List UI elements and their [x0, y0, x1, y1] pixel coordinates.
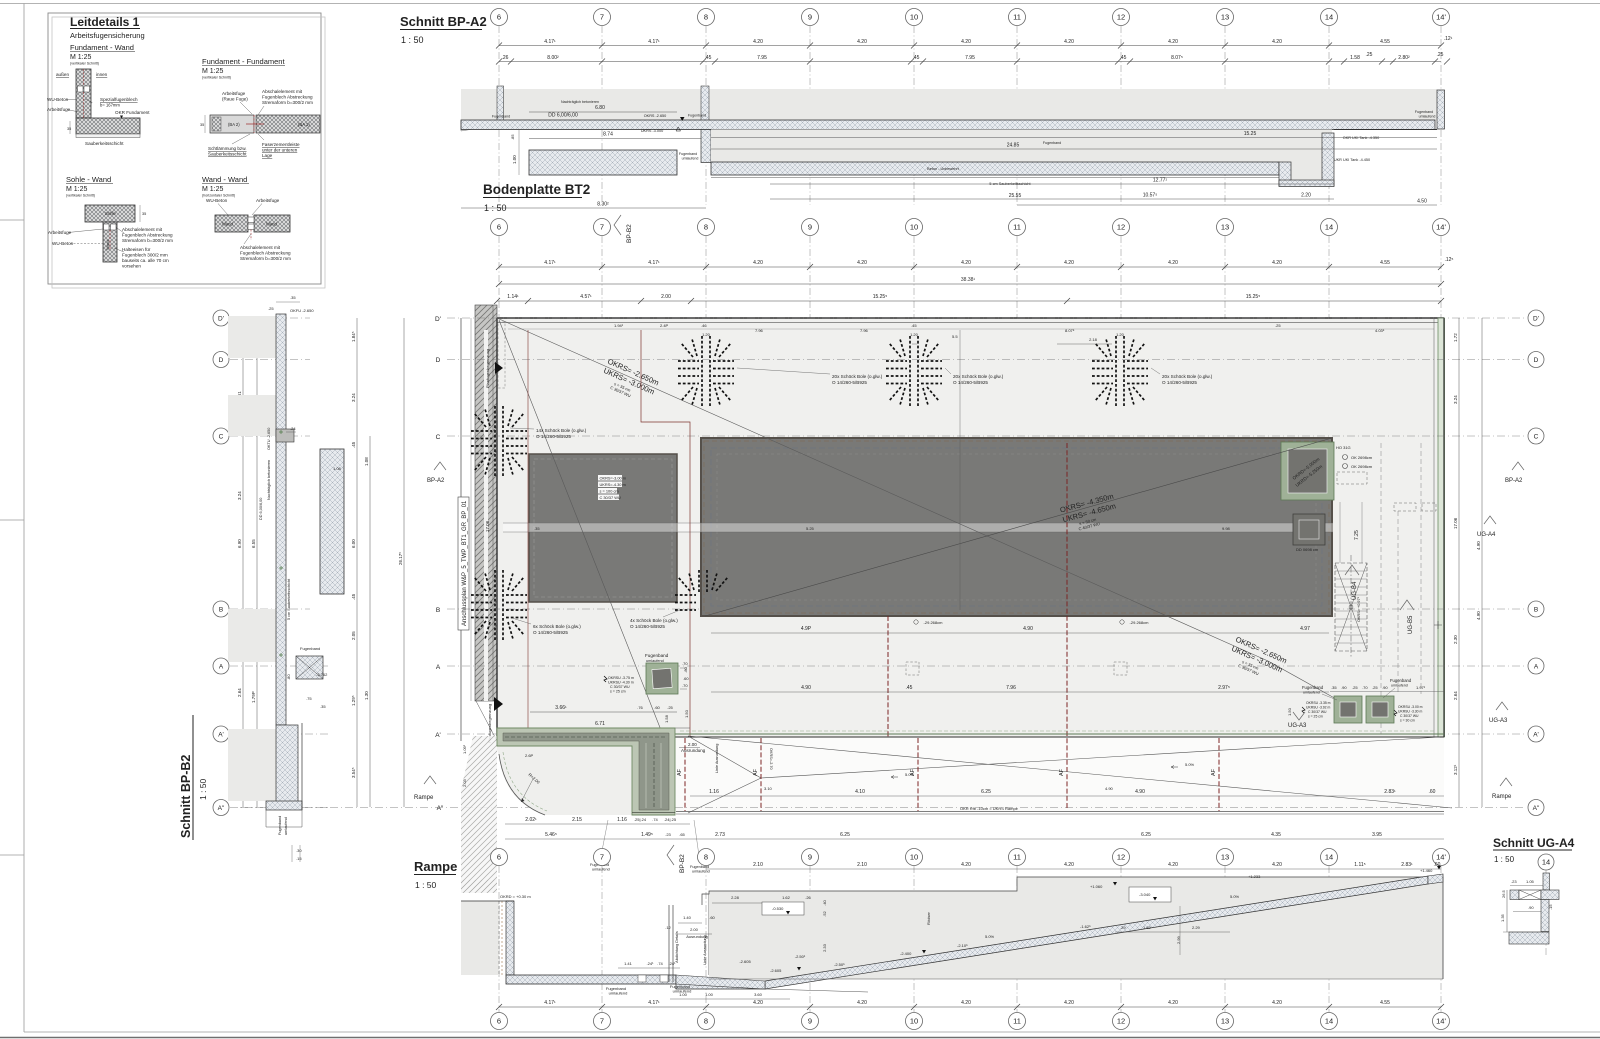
- svg-text:2.02¹: 2.02¹: [525, 817, 537, 823]
- svg-text:Rampe: Rampe: [414, 859, 457, 874]
- svg-text:1.62: 1.62: [782, 895, 791, 900]
- svg-text:Arbeitsfuge: Arbeitsfuge: [256, 198, 280, 203]
- svg-text:.25: .25: [1437, 52, 1444, 58]
- svg-text:umlaufend: umlaufend: [1303, 691, 1320, 695]
- svg-text:4.20: 4.20: [1272, 39, 1282, 45]
- svg-text:.30: .30: [296, 848, 302, 853]
- svg-text:C 30/37 WU: C 30/37 WU: [610, 685, 630, 689]
- svg-text:15.25⁵: 15.25⁵: [873, 294, 888, 300]
- svg-text:(BA 1): (BA 1): [298, 122, 310, 127]
- svg-text:OKRS -2.650: OKRS -2.650: [644, 114, 667, 118]
- svg-text:OK 2698cm: OK 2698cm: [1351, 464, 1373, 469]
- svg-text:D: D: [436, 357, 441, 364]
- svg-text:15.25: 15.25: [1244, 131, 1257, 137]
- svg-text:15.25⁵: 15.25⁵: [1246, 294, 1261, 300]
- svg-text:8.00²: 8.00²: [547, 55, 559, 61]
- svg-text:WU-Beton: WU-Beton: [47, 97, 69, 102]
- svg-text:2.00: 2.00: [661, 294, 671, 300]
- svg-text:Fugenblech Abstreckung: Fugenblech Abstreckung: [262, 95, 313, 100]
- svg-text:1.94¹: 1.94¹: [614, 323, 624, 328]
- svg-text:Fugenband: Fugenband: [492, 115, 510, 119]
- svg-text:C: C: [219, 434, 224, 441]
- svg-text:AF: AF: [910, 768, 916, 776]
- svg-text:4.20: 4.20: [1168, 39, 1178, 45]
- svg-text:9: 9: [808, 223, 812, 232]
- svg-text:5.25: 5.25: [806, 526, 815, 531]
- svg-text:35: 35: [200, 123, 204, 127]
- svg-text:Leitdetails 1: Leitdetails 1: [70, 15, 140, 29]
- svg-text:Anschlussplan W&P_5_TWP_BT1_GR: Anschlussplan W&P_5_TWP_BT1_GR_BP_01: [462, 500, 468, 626]
- svg-text:4.90: 4.90: [1476, 541, 1481, 550]
- svg-text:OK 2698cm: OK 2698cm: [1351, 455, 1373, 460]
- svg-text:6: 6: [497, 1017, 501, 1026]
- svg-text:Bodenplatte BT2: Bodenplatte BT2: [483, 182, 590, 197]
- svg-text:.25: .25: [1366, 52, 1373, 58]
- svg-text:1 : 50: 1 : 50: [484, 203, 507, 213]
- svg-text:2.83¹: 2.83¹: [1401, 862, 1413, 868]
- svg-text:Sauberkeitsschicht: Sauberkeitsschicht: [208, 152, 247, 157]
- svg-text:.80: .80: [683, 666, 688, 672]
- svg-text:.23: .23: [665, 832, 671, 837]
- svg-text:1.49⁵: 1.49⁵: [641, 832, 653, 838]
- svg-text:O 14/260-5/B925: O 14/260-5/B925: [832, 380, 867, 385]
- svg-text:Halteeisen für: Halteeisen für: [122, 247, 151, 252]
- svg-text:-3.762: -3.762: [316, 672, 328, 677]
- svg-text:1.41: 1.41: [624, 961, 633, 966]
- svg-text:6: 6: [497, 223, 501, 232]
- svg-text:OKRS=-3.00 m: OKRS=-3.00 m: [600, 476, 627, 481]
- svg-text:9.98: 9.98: [1222, 526, 1231, 531]
- svg-text:Fundament - Wand: Fundament - Wand: [70, 43, 134, 52]
- svg-text:1.08: 1.08: [364, 457, 369, 466]
- svg-text:-29.268cm: -29.268cm: [924, 620, 944, 625]
- svg-text:6.25: 6.25: [981, 789, 991, 795]
- svg-text:+1.060: +1.060: [1090, 884, 1103, 889]
- svg-text:13: 13: [1221, 853, 1229, 862]
- svg-text:11: 11: [1013, 853, 1021, 862]
- svg-text:Fugenband: Fugenband: [1390, 678, 1412, 683]
- svg-text:4.35: 4.35: [1271, 832, 1281, 838]
- svg-text:Arbeitsfugensicherung: Arbeitsfugensicherung: [70, 31, 145, 40]
- svg-text:Schnitt BP-B2: Schnitt BP-B2: [179, 755, 193, 838]
- svg-text:7: 7: [600, 223, 604, 232]
- svg-text:6.71: 6.71: [595, 721, 605, 727]
- svg-text:14': 14': [1436, 853, 1446, 862]
- svg-text:1.30: 1.30: [364, 691, 369, 700]
- svg-text:umlaufend: umlaufend: [284, 817, 288, 835]
- svg-text:14: 14: [1325, 13, 1333, 22]
- svg-text:13: 13: [1221, 1017, 1229, 1026]
- svg-text:14x Schöck Bole (o.glw.): 14x Schöck Bole (o.glw.): [536, 428, 587, 433]
- svg-text:Fugenblech Abstreckung: Fugenblech Abstreckung: [240, 251, 291, 256]
- svg-text:1.11⁵: 1.11⁵: [1354, 862, 1365, 868]
- svg-text:7.95: 7.95: [757, 55, 767, 61]
- svg-text:1.16: 1.16: [617, 817, 627, 823]
- svg-text:6.25: 6.25: [1141, 832, 1151, 838]
- svg-text:Abschalelement mit: Abschalelement mit: [122, 227, 163, 232]
- svg-text:-2.50¹: -2.50¹: [795, 954, 806, 959]
- svg-text:Sohle - Wand: Sohle - Wand: [66, 175, 111, 184]
- svg-text:3.95: 3.95: [1372, 832, 1382, 838]
- svg-text:1.62: 1.62: [1143, 925, 1152, 930]
- svg-text:(Raue Fuge): (Raue Fuge): [222, 97, 248, 102]
- svg-text:.90: .90: [1382, 685, 1388, 690]
- svg-text:12.77¹: 12.77¹: [1153, 178, 1168, 184]
- svg-text:14': 14': [1436, 223, 1446, 232]
- svg-text:11: 11: [1013, 1017, 1021, 1026]
- svg-text:.90: .90: [1341, 685, 1347, 690]
- svg-text:s = 25 cm: s = 25 cm: [1308, 715, 1323, 719]
- svg-text:-1.62⁵: -1.62⁵: [1080, 924, 1091, 929]
- svg-text:umlaufend: umlaufend: [682, 157, 699, 161]
- svg-text:1.20: 1.20: [1116, 332, 1125, 337]
- svg-text:Abdichtung Details: Abdichtung Details: [675, 931, 679, 963]
- svg-text:4.17¹: 4.17¹: [648, 260, 660, 266]
- svg-text:A": A": [218, 805, 225, 812]
- svg-text:.70: .70: [682, 683, 688, 688]
- svg-text:9: 9: [808, 13, 812, 22]
- svg-text:.12: .12: [665, 925, 671, 930]
- svg-text:4.20: 4.20: [753, 39, 763, 45]
- svg-text:1.40: 1.40: [683, 915, 692, 920]
- svg-text:-2.605: -2.605: [770, 968, 782, 973]
- svg-text:4.90: 4.90: [1023, 626, 1033, 632]
- svg-text:14: 14: [1325, 1017, 1333, 1026]
- svg-text:Abschalelement mit: Abschalelement mit: [262, 89, 303, 94]
- svg-text:vorsehen: vorsehen: [122, 264, 141, 269]
- svg-text:2.10: 2.10: [753, 862, 763, 868]
- svg-text:C 30/37 WU: C 30/37 WU: [600, 495, 621, 500]
- svg-text:UKR UKI Tank -4.450: UKR UKI Tank -4.450: [1334, 158, 1370, 162]
- svg-text:D': D': [1533, 316, 1539, 323]
- svg-text:1.35: 1.35: [1500, 913, 1505, 922]
- svg-text:4.20: 4.20: [1168, 862, 1178, 868]
- svg-text:4.90: 4.90: [1105, 786, 1114, 791]
- svg-text:5.46⁵: 5.46⁵: [545, 832, 557, 838]
- svg-text:.24: .24: [290, 426, 296, 431]
- svg-text:.35: .35: [534, 526, 540, 531]
- svg-text:BP-A2: BP-A2: [427, 478, 445, 484]
- svg-text:A': A': [1533, 732, 1539, 739]
- svg-text:-2.605: -2.605: [739, 959, 751, 964]
- svg-text:Rampe: Rampe: [1492, 794, 1512, 800]
- svg-text:2.80²: 2.80²: [1398, 55, 1410, 61]
- svg-text:6: 6: [497, 853, 501, 862]
- svg-text:3.54⁵: 3.54⁵: [351, 767, 356, 778]
- svg-text:4.20: 4.20: [1272, 862, 1282, 868]
- svg-text:5.0%: 5.0%: [1185, 762, 1195, 767]
- svg-text:D: D: [1534, 357, 1539, 364]
- svg-text:2.00: 2.00: [688, 742, 697, 747]
- svg-text:Rödser: Rödser: [926, 911, 931, 925]
- svg-text:-2.10⁵: -2.10⁵: [957, 943, 968, 948]
- svg-text:1.58: 1.58: [1350, 55, 1360, 61]
- svg-text:2.30: 2.30: [1453, 635, 1458, 644]
- svg-text:außen: außen: [56, 72, 69, 77]
- svg-text:WU-Beton: WU-Beton: [206, 198, 228, 203]
- svg-text:OKRSU -3.75 m: OKRSU -3.75 m: [608, 676, 634, 680]
- svg-text:.26: .26: [502, 55, 509, 61]
- svg-text:.25: .25: [268, 306, 274, 311]
- svg-text:.74: .74: [652, 817, 658, 822]
- svg-text:Fugenband: Fugenband: [645, 653, 669, 658]
- svg-text:35: 35: [142, 212, 146, 216]
- svg-text:OKR Fundament: OKR Fundament: [115, 110, 150, 115]
- svg-text:AF: AF: [1059, 768, 1065, 776]
- svg-text:-0.530: -0.530: [772, 906, 784, 911]
- svg-text:Rampe: Rampe: [414, 795, 434, 801]
- svg-text:7.96: 7.96: [1006, 685, 1016, 691]
- svg-text:A: A: [219, 664, 224, 671]
- svg-text:4.20: 4.20: [1064, 260, 1074, 266]
- svg-text:2.29: 2.29: [1192, 925, 1201, 930]
- svg-text:1 : 50: 1 : 50: [198, 778, 208, 800]
- svg-text:umlaufend: umlaufend: [692, 870, 710, 874]
- svg-text:.85: .85: [510, 134, 515, 140]
- svg-text:.60: .60: [709, 915, 715, 920]
- svg-text:Fugenblech Abstreckung: Fugenblech Abstreckung: [122, 233, 173, 238]
- svg-text:3.10: 3.10: [764, 786, 773, 791]
- svg-text:Fugenband: Fugenband: [278, 816, 282, 835]
- svg-text:4.17¹: 4.17¹: [648, 39, 660, 45]
- svg-text:.52: .52: [822, 910, 827, 916]
- svg-text:3.24: 3.24: [1453, 395, 1458, 404]
- svg-text:(vertikaler Schnitt): (vertikaler Schnitt): [66, 194, 95, 198]
- svg-text:1.20: 1.20: [910, 332, 919, 337]
- svg-text:11: 11: [1013, 13, 1021, 22]
- svg-text:.46: .46: [701, 323, 707, 328]
- svg-text:B: B: [219, 607, 223, 614]
- svg-text:7.25: 7.25: [1354, 530, 1360, 540]
- svg-text:4.20: 4.20: [857, 1000, 867, 1006]
- svg-text:A': A': [218, 732, 224, 739]
- svg-text:8.74: 8.74: [603, 132, 613, 138]
- svg-text:Fugenband: Fugenband: [300, 646, 320, 651]
- svg-text:O 14/260-5/B925: O 14/260-5/B925: [630, 624, 665, 629]
- svg-text:3.12¹: 3.12¹: [1453, 764, 1458, 775]
- svg-text:O 14/260-5/B925: O 14/260-5/B925: [533, 630, 568, 635]
- svg-text:9: 9: [808, 1017, 812, 1026]
- svg-text:4.55: 4.55: [1380, 260, 1390, 266]
- svg-text:1.14¹: 1.14¹: [507, 294, 519, 300]
- svg-text:+1.233: +1.233: [1248, 874, 1261, 879]
- svg-text:6.25: 6.25: [840, 832, 850, 838]
- svg-text:Lage: Lage: [262, 153, 273, 158]
- svg-text:bauseits ca. alle 70 cm: bauseits ca. alle 70 cm: [122, 258, 169, 263]
- svg-text:s = 100 cm: s = 100 cm: [600, 489, 619, 494]
- svg-text:Wand: Wand: [105, 240, 110, 250]
- svg-text:4.20: 4.20: [961, 39, 971, 45]
- svg-text:BP-A2: BP-A2: [1505, 478, 1523, 484]
- svg-text:8.07⁵: 8.07⁵: [1065, 328, 1075, 333]
- svg-text:8: 8: [704, 13, 708, 22]
- svg-text:(BA 2): (BA 2): [228, 122, 240, 127]
- svg-text:Schnitt UG-A4: Schnitt UG-A4: [1493, 836, 1575, 850]
- svg-text:2.97⁵: 2.97⁵: [1218, 685, 1230, 691]
- svg-text:OKRS=-2.70: OKRS=-2.70: [769, 748, 773, 770]
- svg-text:UKRSU -3.30 m: UKRSU -3.30 m: [1398, 710, 1422, 714]
- svg-text:6.90: 6.90: [237, 539, 242, 548]
- svg-text:6x Schöck Bole (o.glw.): 6x Schöck Bole (o.glw.): [533, 624, 581, 629]
- svg-text:Planfugenbegrenzung: Planfugenbegrenzung: [485, 349, 490, 388]
- svg-text:10.57⁵: 10.57⁵: [1143, 193, 1158, 199]
- svg-text:DD 0698 cm: DD 0698 cm: [1296, 547, 1319, 552]
- svg-text:2.6P: 2.6P: [525, 753, 534, 758]
- svg-text:10: 10: [910, 1017, 918, 1026]
- svg-text:4.20: 4.20: [753, 260, 763, 266]
- svg-text:4.90: 4.90: [1476, 611, 1481, 620]
- svg-text:4.57¹: 4.57¹: [580, 294, 592, 300]
- svg-text:umlaufend: umlaufend: [673, 989, 692, 994]
- svg-text:1.58: 1.58: [664, 714, 669, 723]
- svg-text:(horizontaler Schnitt): (horizontaler Schnitt): [202, 194, 235, 198]
- svg-text:24.85: 24.85: [1007, 143, 1020, 149]
- svg-text:O 14/260-5/B925: O 14/260-5/B925: [536, 434, 571, 439]
- svg-text:AF: AF: [753, 768, 759, 776]
- svg-text:7.95: 7.95: [965, 55, 975, 61]
- svg-text:.29: .29: [1120, 925, 1126, 930]
- svg-text:.15: .15: [1548, 904, 1553, 910]
- svg-text:D: D: [219, 357, 224, 364]
- svg-text:Fugenband: Fugenband: [679, 152, 697, 156]
- svg-text:Nachträglich betonieren: Nachträglich betonieren: [267, 460, 271, 500]
- svg-text:Stremaform b=300/2 mm: Stremaform b=300/2 mm: [122, 238, 173, 243]
- svg-text:Beton - Unbewehrt: Beton - Unbewehrt: [927, 167, 960, 171]
- svg-text:umlaufend: umlaufend: [609, 991, 628, 996]
- svg-text:UG-A3: UG-A3: [1489, 718, 1508, 724]
- svg-text:12: 12: [1117, 853, 1125, 862]
- svg-text:1 : 50: 1 : 50: [401, 35, 424, 45]
- svg-text:9: 9: [808, 853, 812, 862]
- svg-text:5.0%: 5.0%: [1230, 894, 1240, 899]
- svg-text:unter der unteren: unter der unteren: [262, 148, 298, 153]
- svg-text:umlaufend: umlaufend: [1391, 684, 1408, 688]
- svg-text:.15: .15: [296, 856, 302, 861]
- svg-text:.60: .60: [654, 705, 660, 710]
- svg-text:Spezialfugenblech: Spezialfugenblech: [100, 97, 138, 102]
- svg-text:.45: .45: [906, 685, 913, 691]
- svg-text:.35: .35: [320, 704, 326, 709]
- svg-text:6: 6: [497, 13, 501, 22]
- svg-text:.35: .35: [1331, 685, 1337, 690]
- svg-text:8: 8: [704, 223, 708, 232]
- svg-text:12: 12: [1117, 1017, 1125, 1026]
- svg-text:(vertikaler Schnitt): (vertikaler Schnitt): [202, 76, 231, 80]
- svg-text:5 cm Sauberkeitsschicht: 5 cm Sauberkeitsschicht: [287, 578, 291, 620]
- svg-text:4.20: 4.20: [1168, 260, 1178, 266]
- svg-text:20x Schöck Bole (o.glw.): 20x Schöck Bole (o.glw.): [953, 374, 1004, 379]
- svg-text:20x Schöck Bole (o.glw.): 20x Schöck Bole (o.glw.): [832, 374, 883, 379]
- svg-text:UG-A4: UG-A4: [1477, 532, 1496, 538]
- svg-text:Linie Ausrundung: Linie Ausrundung: [715, 744, 719, 773]
- svg-text:4.20: 4.20: [1064, 39, 1074, 45]
- svg-text:1.09¹: 1.09¹: [462, 744, 467, 754]
- svg-text:1 : 50: 1 : 50: [415, 880, 437, 890]
- svg-text:B: B: [436, 607, 440, 614]
- svg-text:12: 12: [1117, 13, 1125, 22]
- svg-text:Linie Ausrundung: Linie Ausrundung: [703, 935, 707, 964]
- svg-text:14: 14: [1325, 853, 1333, 862]
- svg-text:Stremaform b=300/2 mm: Stremaform b=300/2 mm: [262, 100, 313, 105]
- svg-text:1.50: 1.50: [1287, 707, 1292, 716]
- svg-text:M 1:25: M 1:25: [66, 186, 88, 193]
- svg-text:Fugenband: Fugenband: [1302, 685, 1324, 690]
- svg-text:2.64: 2.64: [237, 688, 242, 697]
- svg-text:14: 14: [1542, 858, 1550, 867]
- svg-text:UKRS=-4.30 m: UKRS=-4.30 m: [600, 482, 626, 487]
- svg-text:s = 25 cm: s = 25 cm: [610, 690, 626, 694]
- svg-text:2.05: 2.05: [351, 631, 356, 640]
- svg-text:2.73: 2.73: [715, 832, 725, 838]
- svg-text:7.96: 7.96: [860, 328, 869, 333]
- svg-text:(vertikaler Schnitt): (vertikaler Schnitt): [70, 62, 99, 66]
- svg-text:b= 167mm: b= 167mm: [100, 103, 120, 108]
- svg-text:UG-A3: UG-A3: [1288, 723, 1307, 729]
- svg-text:OKTU -2.650: OKTU -2.650: [267, 428, 271, 450]
- svg-text:1.72: 1.72: [1453, 333, 1458, 342]
- svg-text:UKRSU -4.30 m: UKRSU -4.30 m: [608, 681, 634, 685]
- svg-text:20x Schöck Bole (o.glw.): 20x Schöck Bole (o.glw.): [1162, 374, 1213, 379]
- svg-text:4.20: 4.20: [857, 39, 867, 45]
- svg-text:1.97¹: 1.97¹: [1416, 685, 1426, 690]
- svg-text:2.03: 2.03: [462, 778, 467, 787]
- svg-text:2.83¹: 2.83¹: [1384, 789, 1396, 795]
- svg-text:+1.460: +1.460: [1420, 868, 1433, 873]
- svg-text:4.20: 4.20: [961, 260, 971, 266]
- svg-text:Wand: Wand: [222, 222, 233, 227]
- svg-text:14: 14: [1325, 223, 1333, 232]
- svg-text:C 30/37 WU: C 30/37 WU: [1400, 714, 1419, 718]
- svg-text:1.00: 1.00: [512, 155, 517, 164]
- svg-text:14': 14': [1436, 1017, 1446, 1026]
- svg-text:A": A": [437, 805, 444, 812]
- svg-text:.60: .60: [1429, 789, 1436, 795]
- svg-text:26.5: 26.5: [1501, 889, 1506, 898]
- svg-text:4.20: 4.20: [961, 862, 971, 868]
- svg-text:UKRS -3.000: UKRS -3.000: [641, 129, 663, 133]
- svg-text:3.24: 3.24: [237, 491, 242, 500]
- svg-text:6.55: 6.55: [251, 539, 256, 548]
- svg-text:.76: .76: [637, 705, 643, 710]
- svg-text:-2.50⁵: -2.50⁵: [834, 962, 845, 967]
- svg-text:.25: .25: [1372, 685, 1378, 690]
- svg-text:2.10: 2.10: [857, 862, 867, 868]
- svg-text:s = 30 cm: s = 30 cm: [1400, 719, 1415, 723]
- svg-text:4.90: 4.90: [1135, 789, 1145, 795]
- svg-text:4.20: 4.20: [1168, 1000, 1178, 1006]
- svg-text:3.60: 3.60: [754, 992, 763, 997]
- svg-text:UG-B5: UG-B5: [1408, 615, 1414, 634]
- svg-text:3.24: 3.24: [351, 393, 356, 402]
- svg-text:1.50: 1.50: [684, 709, 689, 718]
- svg-text:A: A: [436, 664, 441, 671]
- svg-text:1.00: 1.00: [705, 992, 714, 997]
- svg-text:2.00: 2.00: [690, 927, 699, 932]
- svg-text:OKRS= +0.97⁵: OKRS= +0.97⁵: [1357, 596, 1361, 622]
- svg-text:Sohle: Sohle: [105, 211, 116, 216]
- svg-text:4x Schöck Bole (o.glw.): 4x Schöck Bole (o.glw.): [630, 618, 678, 623]
- svg-text:4.20: 4.20: [1272, 260, 1282, 266]
- svg-text:Fugenband: Fugenband: [688, 114, 706, 118]
- svg-text:O 14/260-5/B925: O 14/260-5/B925: [953, 380, 988, 385]
- svg-text:7: 7: [600, 1017, 604, 1026]
- svg-text:4.90: 4.90: [801, 685, 811, 691]
- svg-text:4.55: 4.55: [1380, 1000, 1390, 1006]
- svg-text:8: 8: [704, 853, 708, 862]
- svg-text:.35: .35: [290, 295, 296, 300]
- svg-text:2.15: 2.15: [572, 817, 582, 823]
- svg-text:8: 8: [704, 1017, 708, 1026]
